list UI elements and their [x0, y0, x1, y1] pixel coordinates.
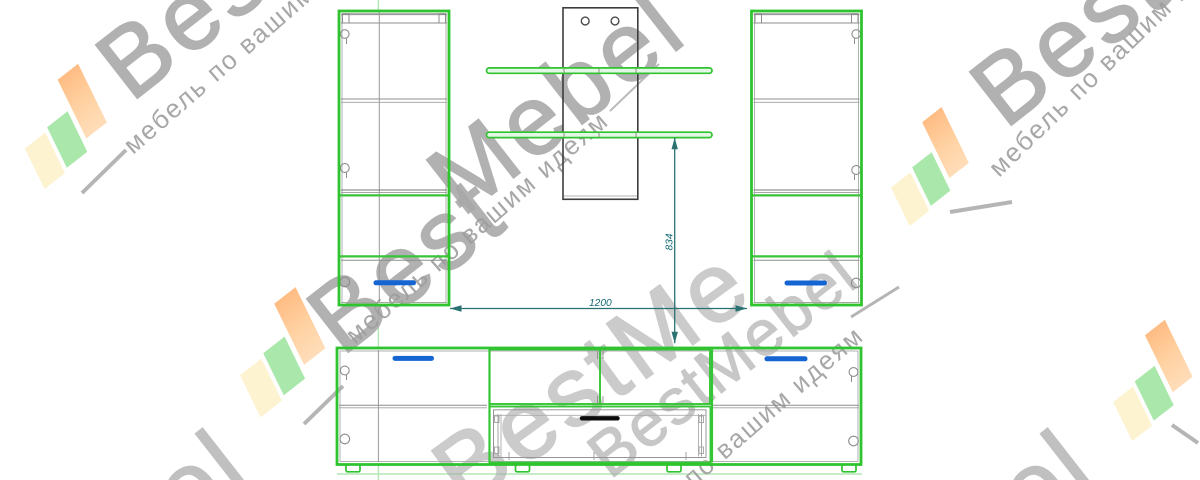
svg-text:Mebel: Mebel	[407, 0, 705, 235]
svg-text:1200: 1200	[589, 298, 612, 309]
svg-text:BestMebel: BestMebel	[0, 407, 268, 480]
svg-text:834: 834	[665, 233, 676, 250]
